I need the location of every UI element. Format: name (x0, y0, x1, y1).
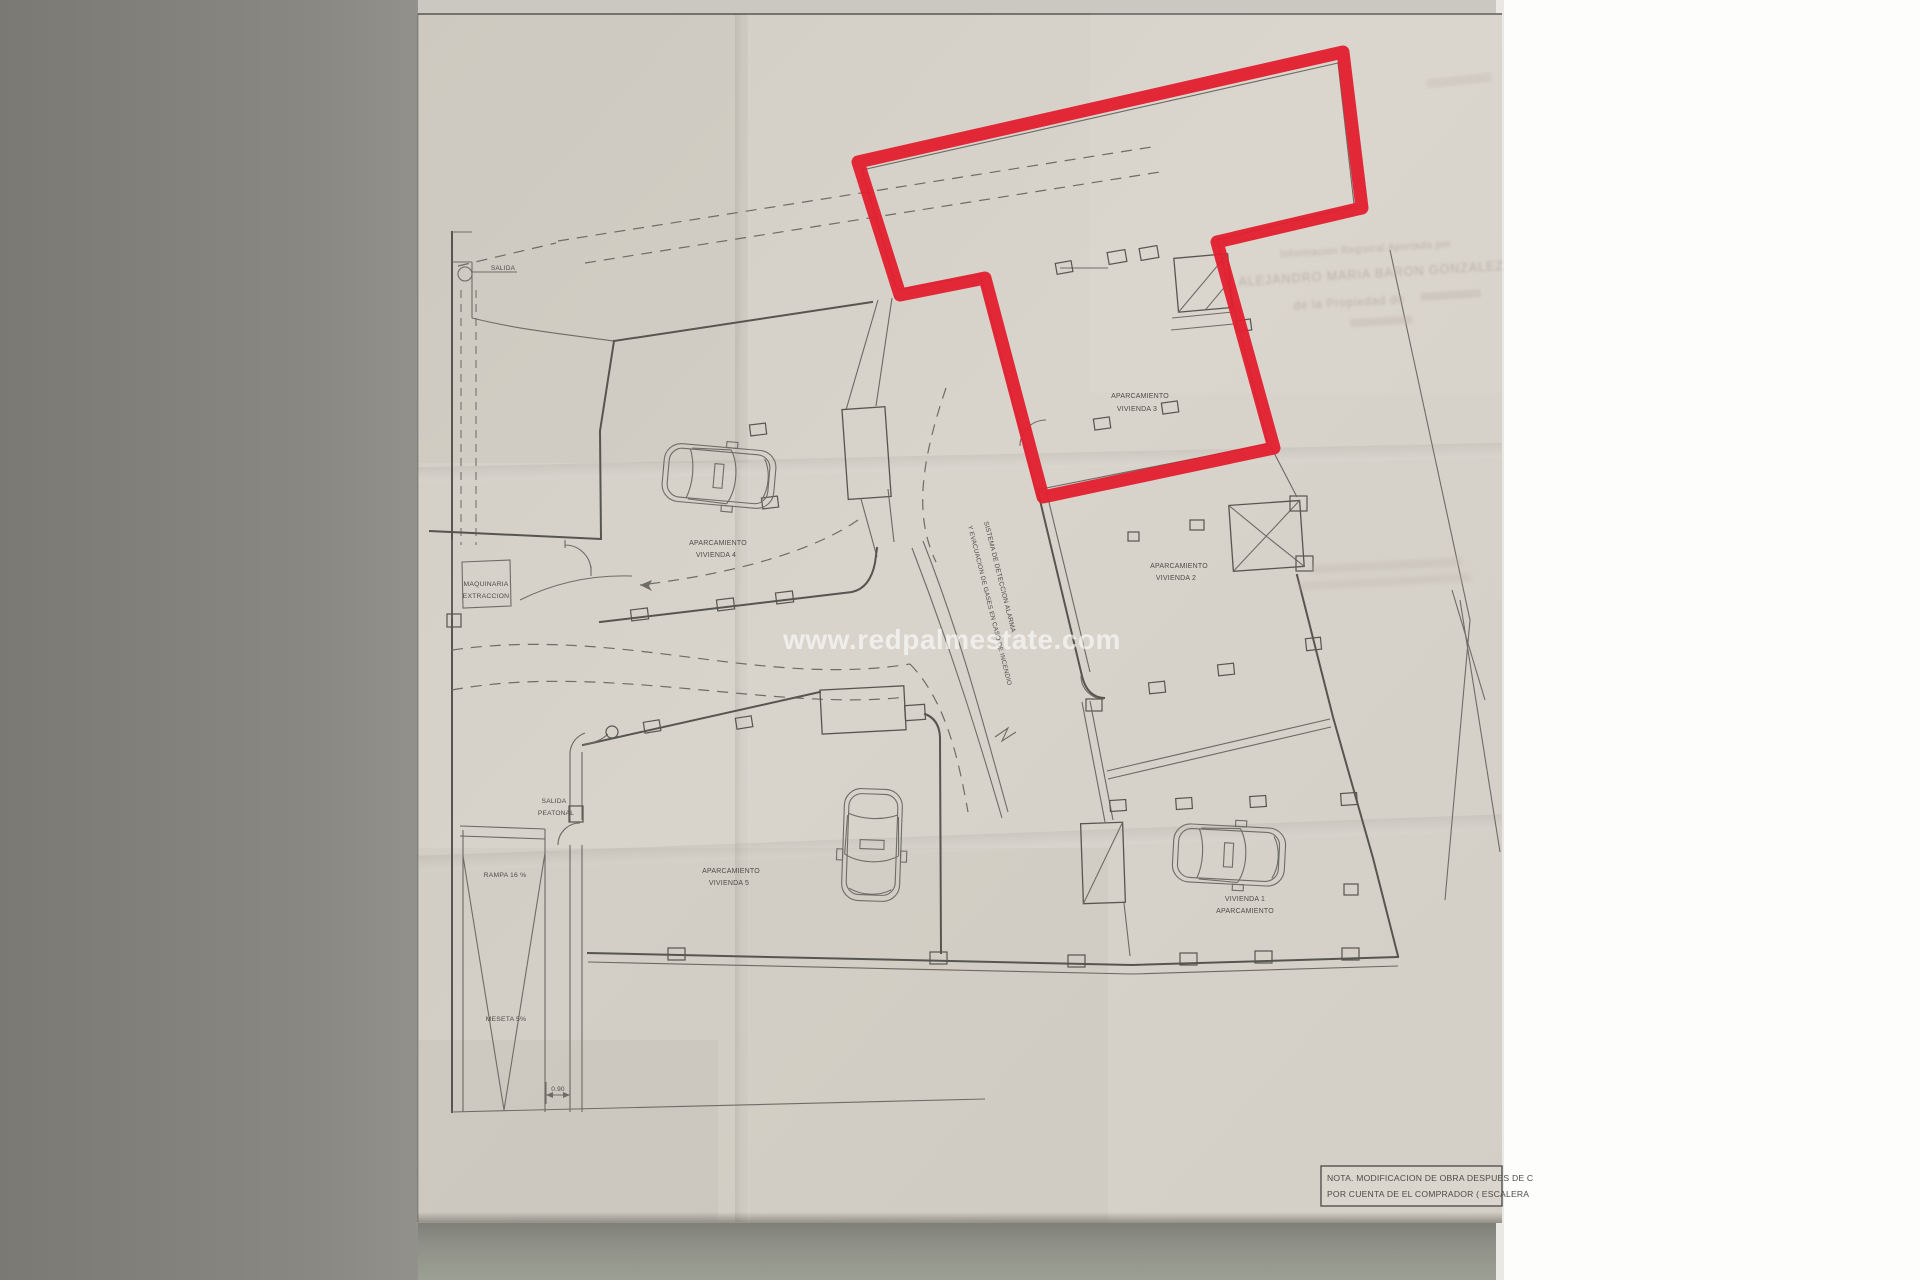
note-line-2: POR CUENTA DE EL COMPRADOR ( ESCALERA (1327, 1189, 1529, 1199)
label-viv1-2: APARCAMIENTO (1216, 908, 1274, 915)
label-salida-peatonal-1: SALIDA (542, 798, 567, 805)
label-rampa: RAMPA 16 % (484, 872, 527, 879)
table-surface-bottom (418, 1222, 1502, 1280)
note-box: NOTA. MODIFICACION DE OBRA DESPUES DE C … (1321, 1166, 1533, 1206)
watermark-text: www.redpalmestate.com (782, 624, 1121, 655)
label-salida: SALIDA (491, 265, 516, 272)
label-viv5-1: APARCAMIENTO (702, 868, 760, 875)
label-maquinaria-1: MAQUINARIA (463, 581, 508, 588)
label-viv4-2: VIVIENDA 4 (696, 552, 736, 559)
label-viv5-2: VIVIENDA 5 (709, 880, 749, 887)
note-line-1: NOTA. MODIFICACION DE OBRA DESPUES DE C (1327, 1173, 1533, 1183)
paper-behind-strip (418, 0, 1502, 15)
label-viv3-1: APARCAMIENTO (1111, 393, 1169, 400)
table-surface-left (0, 0, 420, 1280)
label-viv2-1: APARCAMIENTO (1150, 563, 1208, 570)
label-maquinaria-2: EXTRACCION (463, 593, 510, 600)
label-viv4-1: APARCAMIENTO (689, 540, 747, 547)
paper-sheet (418, 13, 1502, 1223)
label-salida-peatonal-2: PEATONAL (538, 810, 574, 817)
plan-photo: SALIDA (0, 0, 1920, 1280)
dimension-value: 0.90 (551, 1086, 565, 1093)
label-viv1-1: VIVIENDA 1 (1225, 896, 1265, 903)
label-viv2-2: VIVIENDA 2 (1156, 575, 1196, 582)
floor-plan-canvas: SALIDA (0, 0, 1920, 1280)
label-viv3-2: VIVIENDA 3 (1117, 406, 1157, 413)
label-meseta: MESETA 5% (486, 1016, 527, 1023)
